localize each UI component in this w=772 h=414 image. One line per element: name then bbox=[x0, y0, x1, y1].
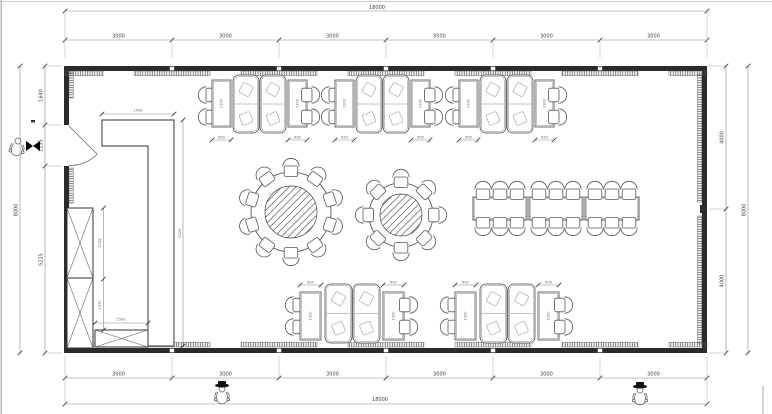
dimension-label: 1370 bbox=[98, 300, 102, 310]
person-figure bbox=[632, 382, 647, 405]
dimension-label: 1300 bbox=[543, 98, 547, 108]
chair bbox=[604, 181, 620, 199]
chair bbox=[475, 218, 491, 236]
chair bbox=[393, 169, 409, 187]
dimension-label: 3000 bbox=[219, 34, 232, 40]
chair bbox=[587, 218, 603, 236]
chair bbox=[549, 87, 567, 103]
dimension-label: 3000 bbox=[433, 372, 446, 378]
dimension-label: 1300 bbox=[220, 98, 224, 108]
dimension-label: 3000 bbox=[540, 372, 553, 378]
chair bbox=[548, 181, 564, 199]
chair bbox=[429, 207, 447, 223]
window-strip bbox=[69, 168, 73, 203]
window-strip bbox=[562, 71, 638, 76]
window-strip bbox=[241, 342, 317, 347]
dimension-label: 650 bbox=[417, 136, 425, 140]
window-strip bbox=[134, 71, 210, 76]
dimension-label: 650 bbox=[294, 136, 302, 140]
banquet-table bbox=[473, 197, 527, 220]
dimension-label: 650 bbox=[218, 136, 226, 140]
dimension-label: 1300 bbox=[419, 98, 423, 108]
dimension-label: 8000 bbox=[14, 204, 20, 217]
chair bbox=[555, 319, 573, 335]
dimension-label: 3000 bbox=[433, 34, 446, 40]
dimension-label: 5225 bbox=[39, 253, 45, 266]
dimension-label: 3000 bbox=[540, 34, 553, 40]
chair bbox=[492, 218, 508, 236]
dimension-label: 1300 bbox=[547, 311, 551, 321]
window-strip bbox=[69, 72, 73, 98]
dimension-label: 1300 bbox=[309, 311, 313, 321]
dimension-label: 650 bbox=[545, 281, 553, 285]
dimension-label: 650 bbox=[390, 281, 398, 285]
door-marker-icon bbox=[33, 141, 40, 151]
floor-plan-canvas: 3000300030003000300030001800030003000300… bbox=[0, 0, 772, 414]
banquet-table bbox=[585, 197, 639, 220]
door-tag bbox=[31, 120, 35, 122]
dimension-label: 650 bbox=[307, 281, 315, 285]
dimension-label: 6325 bbox=[178, 228, 182, 237]
window-strip bbox=[697, 216, 701, 344]
door-swing bbox=[69, 126, 97, 166]
dimension-label: 1300 bbox=[467, 98, 471, 108]
dimension-label: 650 bbox=[541, 136, 549, 140]
dimension-label: 1640 bbox=[39, 89, 45, 102]
window-strip bbox=[562, 342, 638, 347]
chair bbox=[355, 207, 373, 223]
furniture: 1300650130065013006501300650130065013006… bbox=[198, 75, 639, 343]
chair bbox=[509, 181, 525, 199]
window-strip bbox=[697, 74, 701, 202]
person-figure bbox=[8, 137, 26, 157]
dimension-label: 1300 bbox=[464, 311, 468, 321]
person-figure bbox=[214, 381, 229, 404]
chair bbox=[425, 87, 443, 103]
chair bbox=[604, 218, 620, 236]
chair bbox=[531, 181, 547, 199]
chair bbox=[302, 109, 320, 125]
dimension-label: 3000 bbox=[112, 372, 125, 378]
chair bbox=[400, 319, 418, 335]
chair bbox=[555, 297, 573, 313]
chair bbox=[587, 181, 603, 199]
chair bbox=[492, 181, 508, 199]
dimension-label: 2125 bbox=[98, 238, 102, 247]
chair bbox=[425, 109, 443, 125]
chair bbox=[548, 218, 564, 236]
banquet-table bbox=[529, 197, 583, 220]
cabinets: 212513701500 bbox=[67, 206, 150, 348]
chair bbox=[283, 158, 299, 176]
chair bbox=[302, 87, 320, 103]
dimension-label: 4000 bbox=[720, 275, 726, 288]
dimension-label: 18000 bbox=[372, 397, 388, 403]
counter-outline bbox=[102, 120, 174, 346]
chair bbox=[393, 243, 409, 261]
chair bbox=[283, 248, 299, 266]
chair bbox=[509, 218, 525, 236]
chair bbox=[565, 218, 581, 236]
dimension-label: 650 bbox=[462, 281, 470, 285]
dimension-label: 8000 bbox=[742, 204, 748, 217]
dimension-label: 18000 bbox=[369, 5, 385, 11]
dimension-label: 3000 bbox=[647, 34, 660, 40]
chair bbox=[531, 218, 547, 236]
dimension-label: 650 bbox=[465, 136, 473, 140]
chair bbox=[475, 181, 491, 199]
dimension-label: 4000 bbox=[720, 131, 726, 144]
dimension-label: 3000 bbox=[326, 372, 339, 378]
chair bbox=[621, 218, 637, 236]
person-figures bbox=[8, 137, 647, 405]
door-marker-icon bbox=[26, 141, 33, 151]
dimension-label: 3000 bbox=[219, 372, 232, 378]
dimension-label: 1300 bbox=[392, 311, 396, 321]
window-strip bbox=[348, 71, 424, 76]
chair bbox=[400, 297, 418, 313]
dimension-label: 1300 bbox=[343, 98, 347, 108]
chair bbox=[549, 109, 567, 125]
dimension-label: 3000 bbox=[326, 34, 339, 40]
dimension-label: 3000 bbox=[112, 34, 125, 40]
floor-plan-drawing: 3000300030003000300030001800030003000300… bbox=[0, 0, 772, 414]
chair bbox=[621, 181, 637, 199]
chair bbox=[565, 181, 581, 199]
dimension-label: 3000 bbox=[647, 372, 660, 378]
dimension-label: 1500 bbox=[133, 109, 143, 113]
dimension-label: 1500 bbox=[116, 318, 126, 322]
dimension-label: 1300 bbox=[296, 98, 300, 108]
entrance-door bbox=[26, 120, 97, 166]
service-counter: 15006325 bbox=[100, 109, 186, 349]
dimension-label: 650 bbox=[341, 136, 349, 140]
